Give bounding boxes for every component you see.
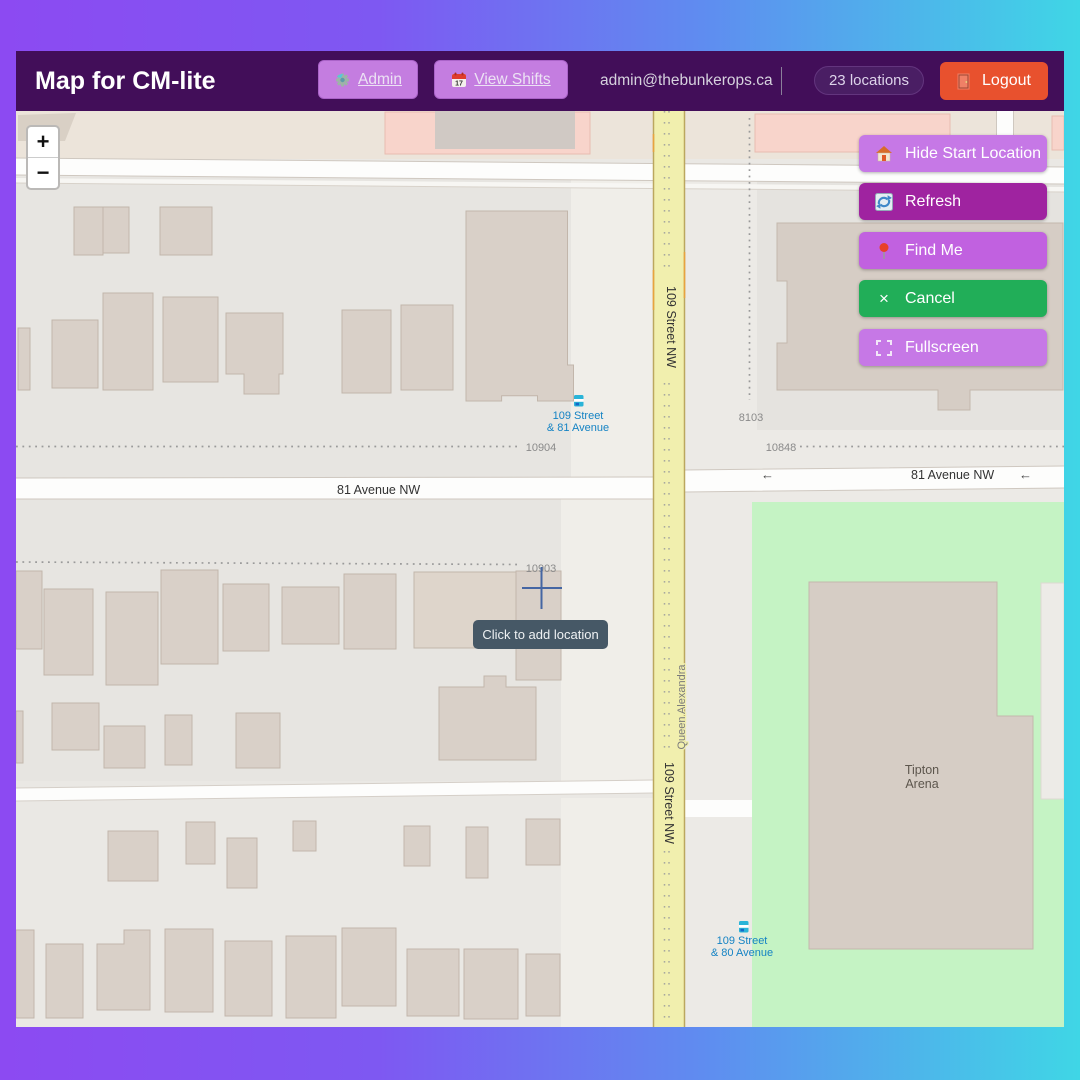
svg-text:Tipton: Tipton bbox=[905, 763, 939, 777]
svg-text:81 Avenue NW: 81 Avenue NW bbox=[911, 468, 994, 482]
svg-text:109 Street NW: 109 Street NW bbox=[664, 286, 678, 368]
svg-text:81 Avenue NW: 81 Avenue NW bbox=[337, 483, 420, 497]
svg-text:109 Street: 109 Street bbox=[717, 935, 768, 947]
svg-text:& 80 Avenue: & 80 Avenue bbox=[711, 947, 773, 959]
svg-text:8103: 8103 bbox=[739, 412, 763, 424]
svg-text:109 Street: 109 Street bbox=[553, 410, 604, 422]
svg-text:←: ← bbox=[761, 467, 774, 482]
svg-text:17: 17 bbox=[455, 80, 463, 87]
svg-text:10904: 10904 bbox=[526, 442, 557, 454]
svg-text:109 Street NW: 109 Street NW bbox=[662, 762, 676, 844]
svg-text:Arena: Arena bbox=[905, 777, 938, 791]
svg-text:←: ← bbox=[1019, 467, 1032, 482]
svg-text:Queen Alexandra: Queen Alexandra bbox=[676, 664, 688, 750]
svg-text:& 81 Avenue: & 81 Avenue bbox=[547, 422, 609, 434]
svg-text:10848: 10848 bbox=[766, 442, 797, 454]
